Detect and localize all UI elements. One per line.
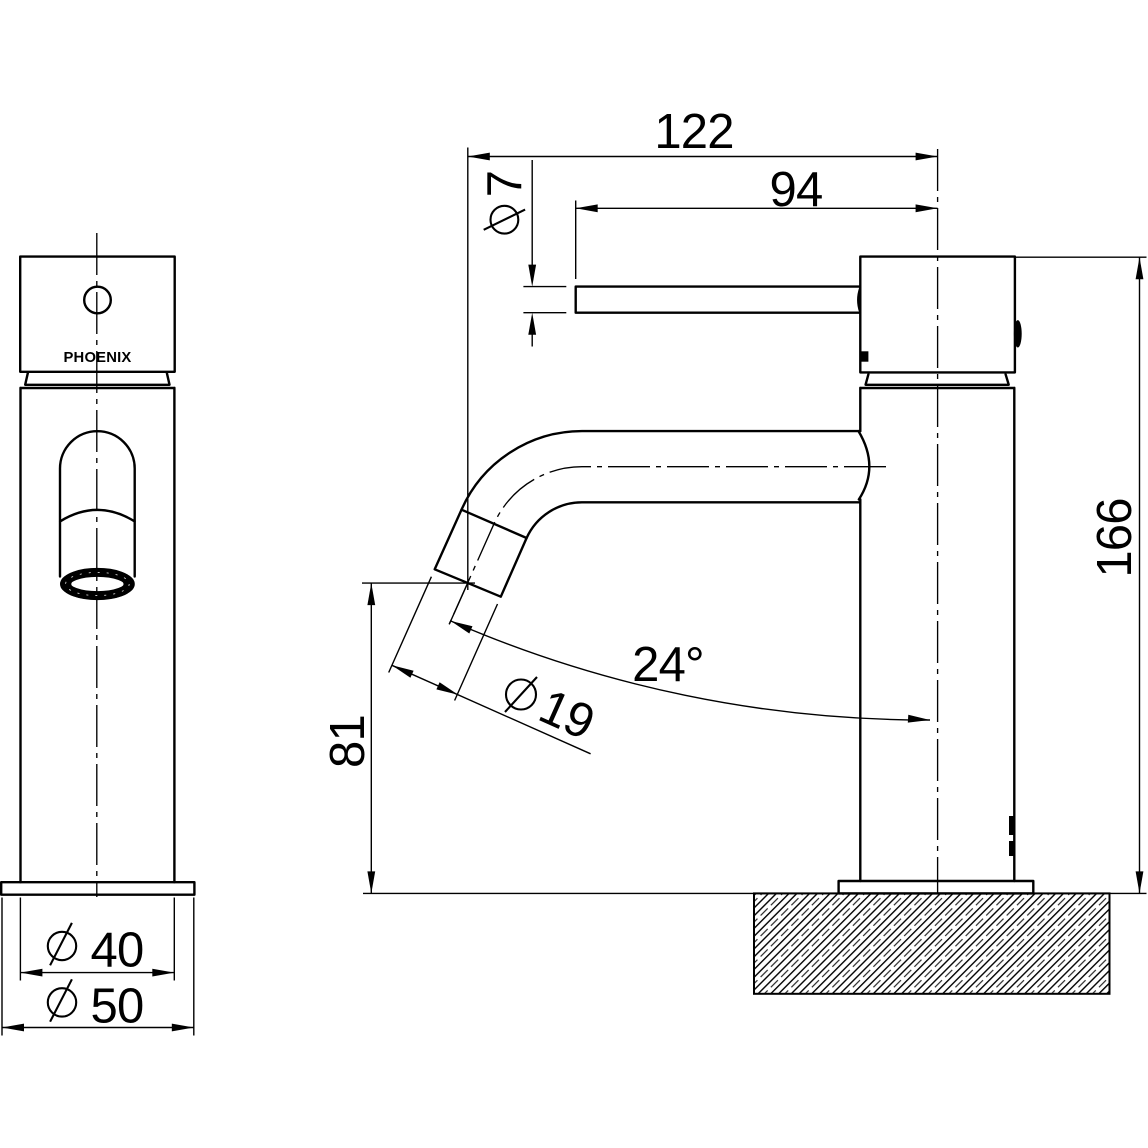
svg-text:PHOENIX: PHOENIX bbox=[63, 350, 131, 366]
svg-text:7: 7 bbox=[478, 171, 532, 197]
svg-text:81: 81 bbox=[321, 715, 375, 768]
svg-text:24°: 24° bbox=[632, 638, 704, 692]
svg-text:40: 40 bbox=[91, 924, 144, 978]
svg-text:50: 50 bbox=[91, 980, 144, 1034]
svg-text:122: 122 bbox=[654, 105, 733, 159]
svg-text:94: 94 bbox=[770, 163, 823, 217]
svg-text:166: 166 bbox=[1088, 498, 1142, 577]
